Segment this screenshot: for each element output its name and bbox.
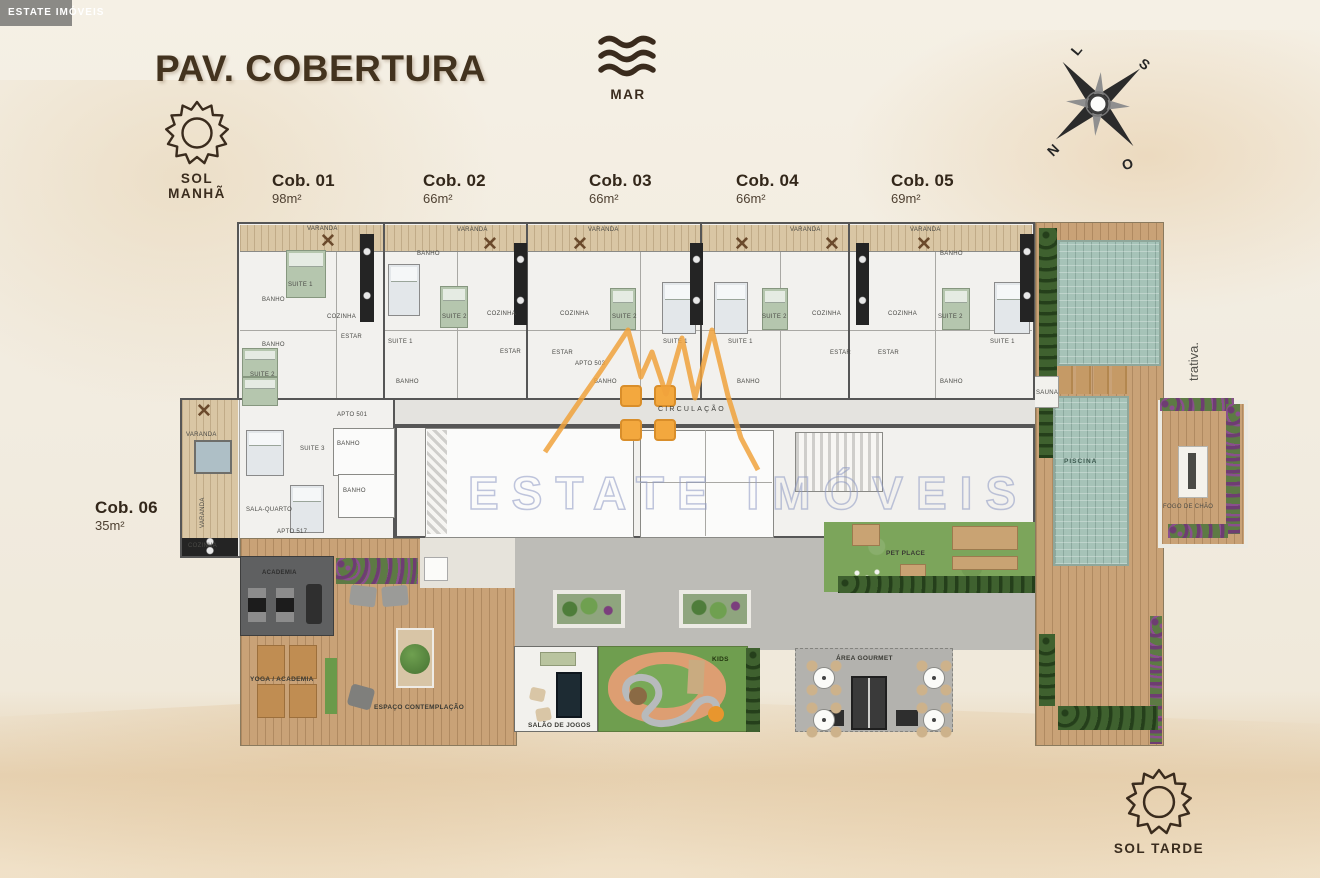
unit-area: 35m²	[95, 518, 158, 534]
room-label: ESPAÇO CONTEMPLAÇÃO	[374, 704, 464, 711]
game-chair	[535, 707, 552, 722]
firepit-flowers-top	[1160, 398, 1234, 411]
unit-wall	[383, 224, 385, 398]
room-label: BANHO	[940, 251, 963, 257]
kitchen-counter	[360, 234, 374, 322]
flower-bed	[336, 558, 418, 584]
pool-table	[556, 672, 582, 718]
bed-icon	[440, 286, 468, 328]
sun-icon	[1125, 768, 1193, 836]
room-label: BANHO	[262, 342, 285, 348]
room-label: COZINHA	[560, 311, 589, 317]
room-label: SUITE 2	[442, 314, 467, 320]
sun-afternoon-legend: SOL TARDE	[1113, 768, 1205, 856]
gourmet-table-icon	[916, 702, 952, 738]
tree-icon	[400, 644, 430, 674]
room-label: COZINHA	[487, 311, 516, 317]
page-title: PAV. COBERTURA	[155, 48, 486, 90]
interior-wall	[240, 330, 336, 331]
table-icon: ✕	[824, 235, 840, 254]
unit-area: 98m²	[272, 191, 335, 207]
table-icon: ✕	[572, 235, 588, 254]
stair-hatch	[427, 430, 447, 534]
bed-icon	[290, 485, 324, 533]
unit-label: Cob. 0198m²	[272, 170, 335, 208]
room-label: SALA-QUARTO	[246, 507, 292, 513]
unit-area: 69m²	[891, 191, 954, 207]
unit-name: Cob. 06	[95, 497, 158, 518]
table-icon: ✕	[196, 402, 212, 421]
compass: LSNO	[1028, 38, 1168, 170]
table-icon: ✕	[320, 232, 336, 251]
cob06-bath	[333, 428, 395, 476]
corner-watermark-text: ESTATE IMÓVEIS	[8, 7, 104, 18]
center-watermark: ESTATE IMÓVEIS	[468, 466, 1029, 520]
cob06-varanda-left	[182, 474, 238, 538]
bed-icon	[286, 250, 326, 298]
sun-afternoon-label: SOL TARDE	[1113, 841, 1205, 856]
room-label: VARANDA	[307, 226, 338, 232]
kids-track	[608, 668, 740, 730]
bed-icon	[242, 377, 278, 406]
room-label: COZINHA	[888, 311, 917, 317]
room-label: SUITE 2	[938, 314, 963, 320]
room-label: BANHO	[262, 297, 285, 303]
unit-name: Cob. 04	[736, 170, 799, 191]
unit-name: Cob. 03	[589, 170, 652, 191]
gourmet-table-icon	[806, 660, 842, 696]
room-label: BANHO	[337, 441, 360, 447]
deck-planter	[1039, 634, 1055, 706]
room-label: BANHO	[396, 379, 419, 385]
unit-wall	[848, 224, 850, 398]
planter-box	[553, 590, 625, 628]
table-icon: ✕	[916, 235, 932, 254]
room-label: BANHO	[343, 488, 366, 494]
room-label: ESTAR	[830, 350, 851, 356]
room-label: VARANDA	[457, 227, 488, 233]
gym-equipment	[306, 584, 322, 624]
unit-name: Cob. 02	[423, 170, 486, 191]
unit-label: Cob. 0569m²	[891, 170, 954, 208]
room-label: ESTAR	[878, 350, 899, 356]
unit-label: Cob. 0366m²	[589, 170, 652, 208]
bed-icon	[388, 264, 420, 316]
room-label: SUITE 1	[388, 339, 413, 345]
pool-lower	[1053, 396, 1129, 566]
cob06-bath	[338, 474, 395, 518]
yoga-mat	[289, 645, 317, 679]
yoga-mat	[257, 645, 285, 679]
unit-label: Cob. 0266m²	[423, 170, 486, 208]
waves-icon	[597, 34, 659, 80]
kids-hedge	[746, 648, 760, 732]
unit-area: 66m²	[736, 191, 799, 207]
game-chair	[529, 687, 546, 703]
deck-table	[424, 557, 448, 581]
interior-wall	[385, 330, 526, 331]
gym-equipment	[248, 588, 266, 622]
room-label: BANHO	[417, 251, 440, 257]
pet-bench	[852, 524, 880, 546]
room-label: YOGA / ACADEMIA	[250, 676, 314, 683]
room-label: PET PLACE	[886, 550, 925, 557]
sun-morning-label: SOL MANHÃ	[152, 171, 242, 201]
room-label: FOGO DE CHÃO	[1163, 504, 1213, 510]
room-label: VARANDA	[186, 432, 217, 438]
interior-wall	[336, 252, 337, 398]
unit-name: Cob. 01	[272, 170, 335, 191]
kitchen-counter	[690, 243, 703, 325]
room-label: APTO 517	[277, 529, 307, 535]
outdoor-sofa	[381, 585, 409, 607]
firepit-slot	[1188, 453, 1196, 489]
sun-icon	[164, 100, 230, 166]
pet-bench	[952, 526, 1018, 550]
gourmet-table-icon	[916, 660, 952, 696]
yoga-mat	[257, 684, 285, 718]
yoga-mat	[289, 684, 317, 718]
firepit-flowers-right	[1226, 404, 1240, 534]
room-label: PISCINA	[1064, 458, 1097, 465]
grill	[896, 710, 918, 726]
room-label: COZINHA	[327, 314, 356, 320]
unit-name: Cob. 05	[891, 170, 954, 191]
game-shelf	[540, 652, 576, 666]
outdoor-sofa	[349, 584, 377, 607]
grass-strip	[325, 658, 337, 714]
room-label: VARANDA	[200, 497, 206, 528]
room-label: SUITE 1	[288, 282, 313, 288]
room-label: KIDS	[712, 656, 729, 663]
unit-area: 66m²	[589, 191, 652, 207]
bed-icon	[246, 430, 284, 476]
sun-morning-legend: SOL MANHÃ	[152, 100, 242, 201]
gourmet-table-icon	[806, 702, 842, 738]
room-label: APTO 501	[337, 412, 367, 418]
disclaimer-text: trativa.	[1186, 342, 1201, 381]
gym-equipment	[276, 588, 294, 622]
planter-box	[679, 590, 751, 628]
logo-watermark	[540, 322, 770, 478]
room-label: ACADEMIA	[262, 570, 297, 576]
interior-wall	[239, 400, 240, 556]
bed-icon	[942, 288, 970, 330]
pet-bench	[952, 556, 1018, 570]
sea-legend: MAR	[596, 34, 660, 102]
room-label: SUITE 2	[762, 314, 787, 320]
room-label: SUITE 1	[990, 339, 1015, 345]
room-label: VARANDA	[790, 227, 821, 233]
table-icon: ✕	[482, 235, 498, 254]
room-label: SUITE 2	[250, 372, 275, 378]
room-label: SUITE 2	[612, 314, 637, 320]
floorplan-page: ESTATE IMÓVEIS PAV. COBERTURA MAR LSNO S…	[0, 0, 1320, 878]
firepit-flowers-bottom	[1168, 524, 1228, 538]
sea-label: MAR	[596, 87, 660, 102]
gourmet-door-split	[868, 678, 870, 728]
room-label: ESTAR	[341, 334, 362, 340]
jacuzzi	[194, 440, 232, 474]
unit-area: 66m²	[423, 191, 486, 207]
room-label: ÁREA GOURMET	[836, 655, 893, 662]
room-label: VARANDA	[910, 227, 941, 233]
room-label: COZINHA	[188, 543, 217, 549]
pool-loungers	[1058, 366, 1130, 394]
unit-label: Cob. 0466m²	[736, 170, 799, 208]
kitchen-counter	[1020, 234, 1034, 322]
room-label: SALÃO DE JOGOS	[528, 722, 591, 729]
room-label: VARANDA	[588, 227, 619, 233]
interior-wall	[935, 252, 936, 398]
pet-hedge	[838, 576, 1035, 593]
room-label: ESTAR	[500, 349, 521, 355]
room-label: SUITE 3	[300, 446, 325, 452]
kitchen-counter	[856, 243, 869, 325]
room-label: COZINHA	[812, 311, 841, 317]
unit-label: Cob. 0635m²	[95, 497, 158, 535]
deck-planter	[1058, 706, 1158, 730]
room-label: SAUNA	[1036, 390, 1058, 396]
table-icon: ✕	[734, 235, 750, 254]
room-label: BANHO	[940, 379, 963, 385]
pool-upper	[1057, 240, 1161, 366]
